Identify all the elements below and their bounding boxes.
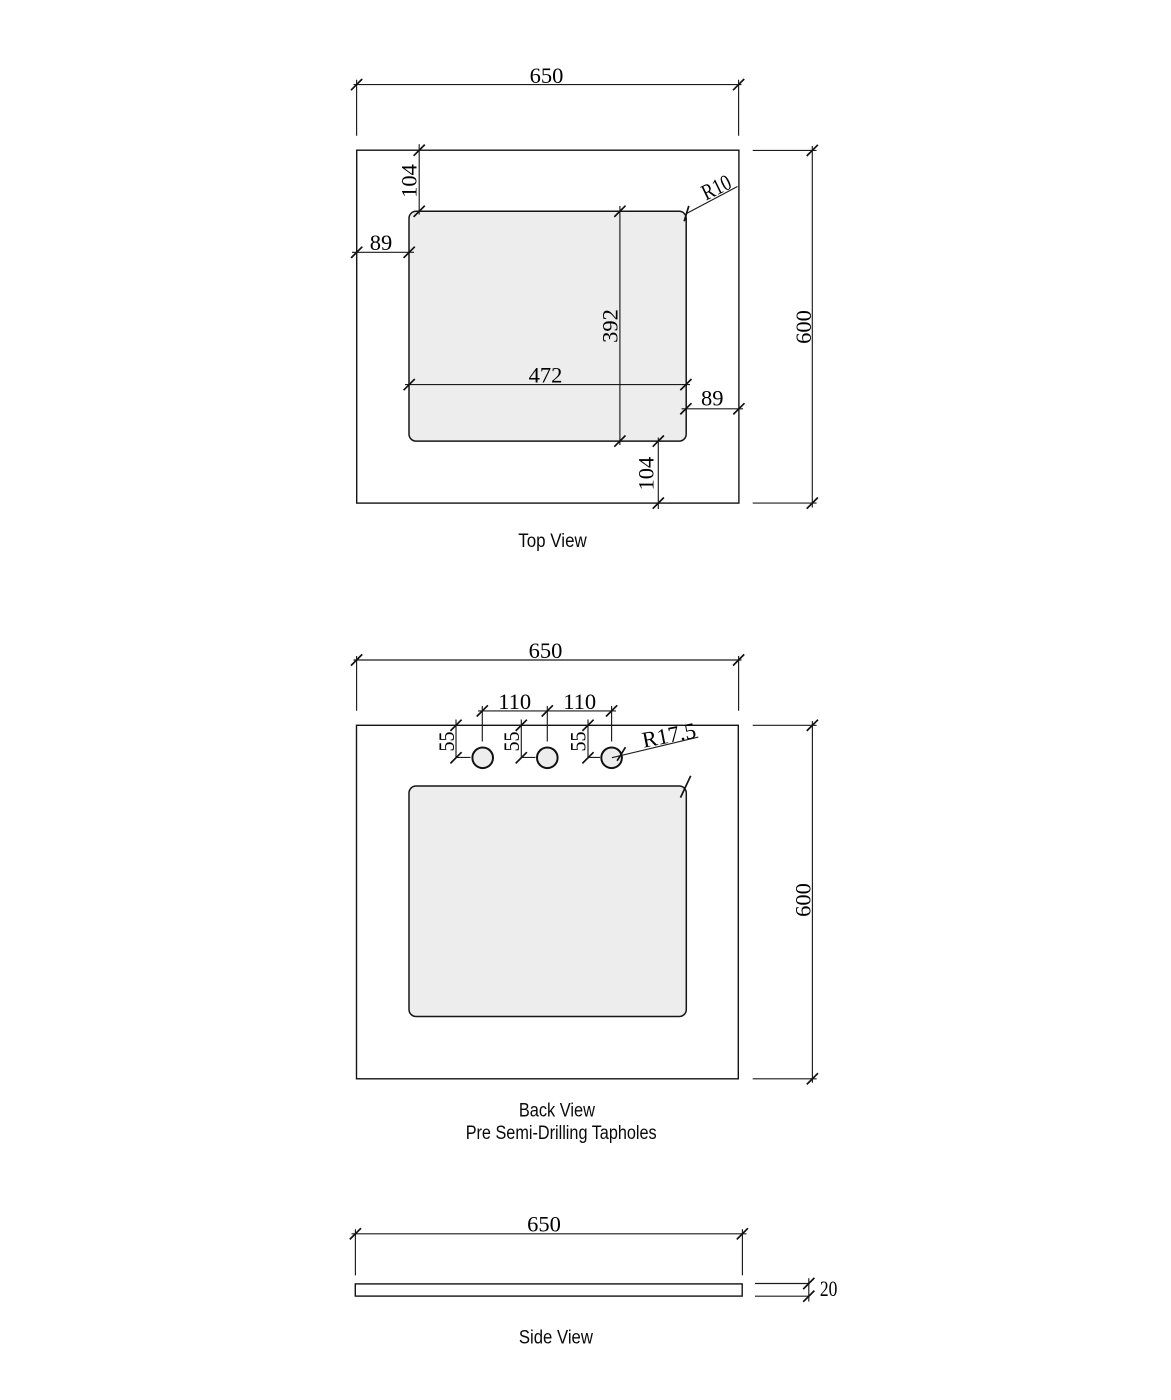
svg-text:600: 600: [791, 883, 816, 917]
svg-text:89: 89: [370, 230, 393, 255]
svg-text:20: 20: [820, 1276, 838, 1301]
svg-text:Side View: Side View: [519, 1328, 593, 1349]
svg-text:110: 110: [498, 689, 531, 714]
svg-text:600: 600: [791, 310, 816, 344]
svg-text:Top View: Top View: [518, 531, 587, 552]
svg-text:55: 55: [566, 732, 591, 752]
svg-text:110: 110: [563, 689, 596, 714]
svg-text:650: 650: [527, 1211, 561, 1236]
svg-text:650: 650: [530, 63, 564, 88]
svg-text:650: 650: [529, 638, 563, 663]
svg-text:104: 104: [634, 457, 659, 491]
svg-text:104: 104: [397, 164, 422, 198]
svg-text:Back View: Back View: [519, 1101, 595, 1122]
svg-text:Pre Semi-Drilling Tapholes: Pre Semi-Drilling Tapholes: [466, 1123, 657, 1144]
svg-text:392: 392: [598, 309, 623, 343]
svg-text:472: 472: [529, 362, 563, 387]
svg-text:89: 89: [701, 386, 724, 411]
svg-text:55: 55: [499, 732, 524, 752]
svg-text:55: 55: [434, 732, 459, 752]
